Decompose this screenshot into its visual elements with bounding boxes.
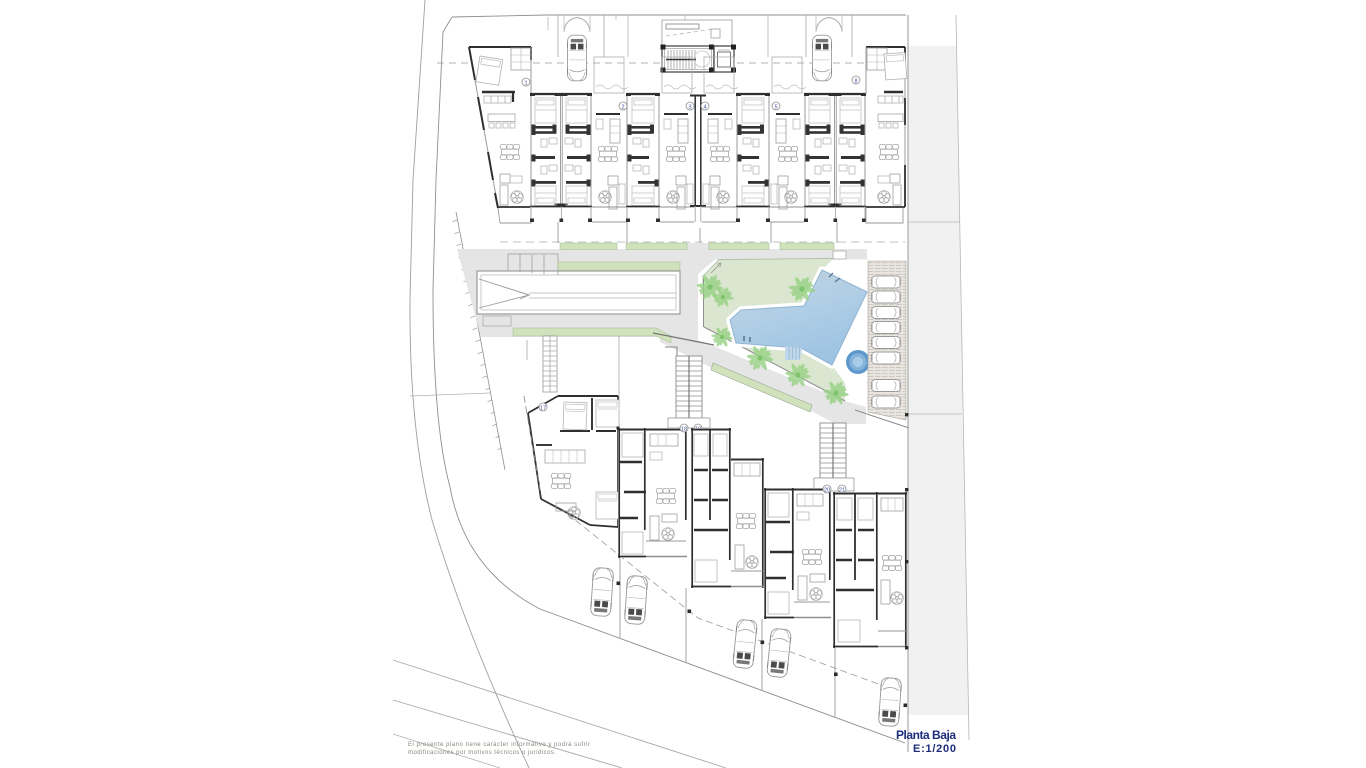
svg-text:17: 17 [540,406,546,412]
svg-text:20: 20 [824,488,830,494]
svg-text:1: 1 [524,81,527,87]
svg-text:modificaciones por motivos téc: modificaciones por motivos técnicos o ju… [408,750,556,756]
svg-text:3: 3 [688,105,691,111]
svg-text:4: 4 [703,105,706,111]
svg-text:8: 8 [854,79,857,85]
svg-text:Planta Baja: Planta Baja [896,728,956,742]
svg-text:El presente plano tiene caráct: El presente plano tiene carácter informa… [408,742,590,748]
svg-text:18: 18 [681,427,687,433]
svg-text:5: 5 [774,105,777,111]
svg-text:2: 2 [621,105,624,111]
svg-text:E:1/200: E:1/200 [913,743,956,755]
